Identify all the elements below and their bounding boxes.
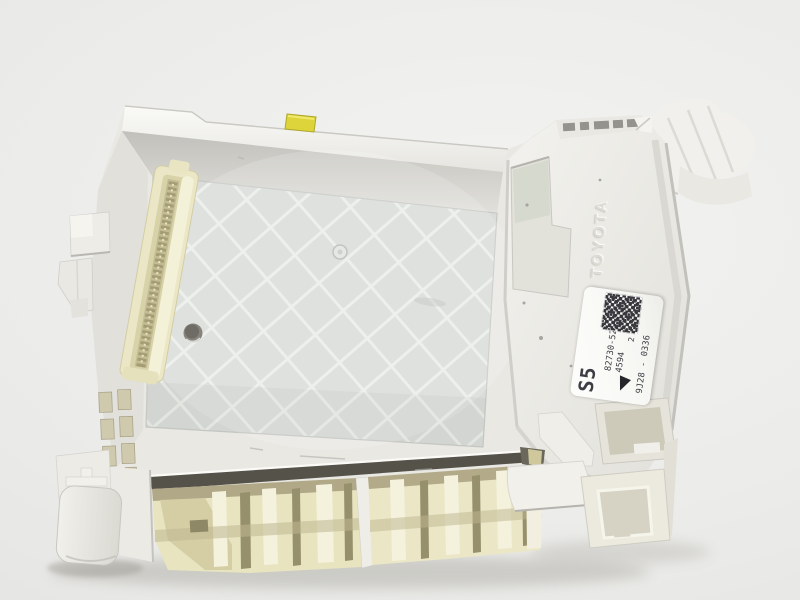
drain-hole <box>184 324 203 343</box>
bottom-connector-a <box>152 478 362 573</box>
label-size-code: S5 <box>575 365 598 394</box>
yellow-marker-tab <box>285 114 316 132</box>
triangle-marker-icon <box>614 375 631 393</box>
junction-box-illustration <box>0 0 800 600</box>
mounting-foot <box>55 485 122 566</box>
product-photo: TOYOTA S5 82730-52K40 4594 2 9J28 - 0336 <box>0 0 800 600</box>
label-count: 2 <box>628 337 637 343</box>
part-label: S5 82730-52K40 4594 2 9J28 - 0336 <box>570 286 665 406</box>
label-serial: 9J28 - 0336 <box>636 335 653 395</box>
label-code: 4594 <box>615 352 626 374</box>
qr-code-icon <box>600 292 643 335</box>
